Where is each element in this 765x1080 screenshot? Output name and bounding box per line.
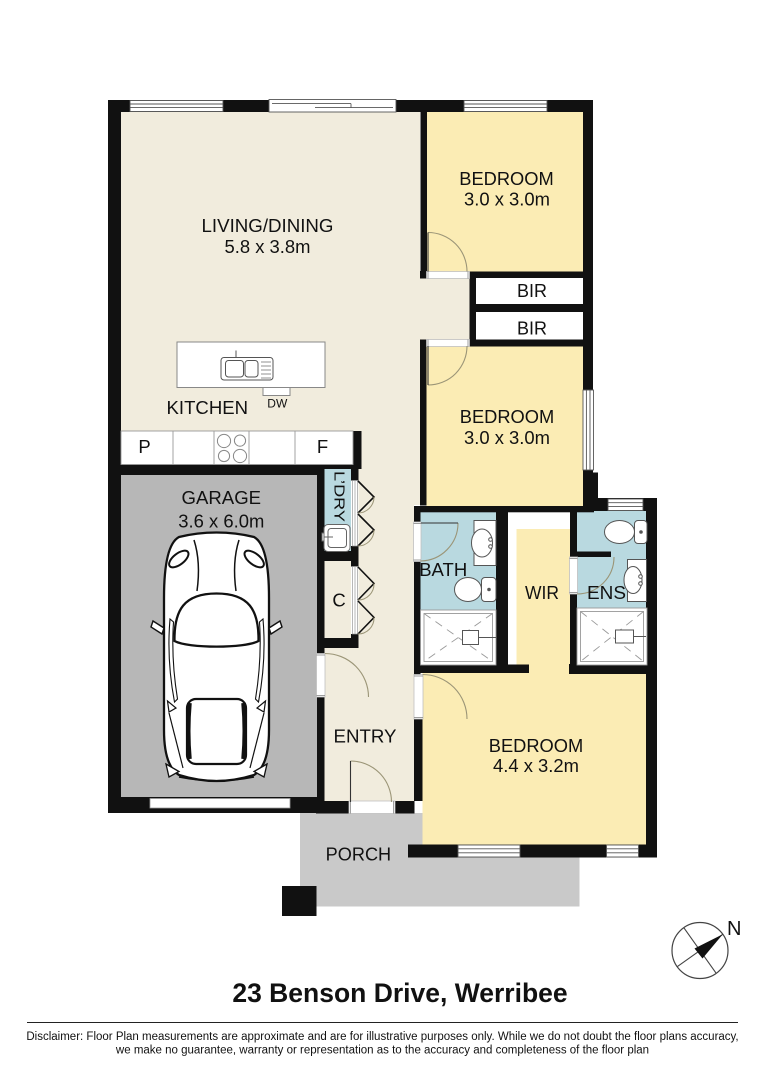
svg-text:BEDROOM: BEDROOM (460, 406, 555, 427)
svg-text:GARAGE: GARAGE (182, 487, 262, 508)
svg-text:BIR: BIR (517, 319, 547, 339)
svg-text:23 Benson Drive, Werribee: 23 Benson Drive, Werribee (232, 978, 567, 1008)
svg-text:3.0 x 3.0m: 3.0 x 3.0m (464, 427, 550, 448)
svg-text:ENTRY: ENTRY (334, 726, 397, 747)
svg-text:4.4 x 3.2m: 4.4 x 3.2m (493, 755, 579, 776)
svg-text:BIR: BIR (517, 281, 547, 301)
svg-text:WIR: WIR (525, 582, 559, 603)
svg-text:BEDROOM: BEDROOM (489, 735, 584, 756)
svg-text:KITCHEN: KITCHEN (167, 397, 249, 418)
svg-text:LIVING/DINING: LIVING/DINING (202, 215, 334, 236)
svg-text:3.0 x 3.0m: 3.0 x 3.0m (464, 189, 550, 210)
svg-text:Disclaimer: Floor Plan measure: Disclaimer: Floor Plan measurements are … (26, 1031, 738, 1043)
svg-text:F: F (317, 436, 328, 457)
svg-text:C: C (332, 590, 345, 611)
svg-text:DW: DW (267, 397, 288, 411)
svg-text:5.8 x 3.8m: 5.8 x 3.8m (225, 236, 311, 257)
svg-text:3.6 x 6.0m: 3.6 x 6.0m (178, 511, 264, 532)
svg-text:N: N (727, 918, 741, 940)
svg-text:BATH: BATH (419, 559, 467, 580)
svg-text:L’DRY: L’DRY (331, 471, 348, 522)
svg-text:P: P (138, 436, 150, 457)
svg-text:BEDROOM: BEDROOM (459, 168, 554, 189)
svg-text:PORCH: PORCH (326, 844, 392, 865)
svg-text:ENS: ENS (587, 582, 626, 603)
svg-text:we make no guarantee, warranty: we make no guarantee, warranty or repres… (115, 1045, 649, 1057)
